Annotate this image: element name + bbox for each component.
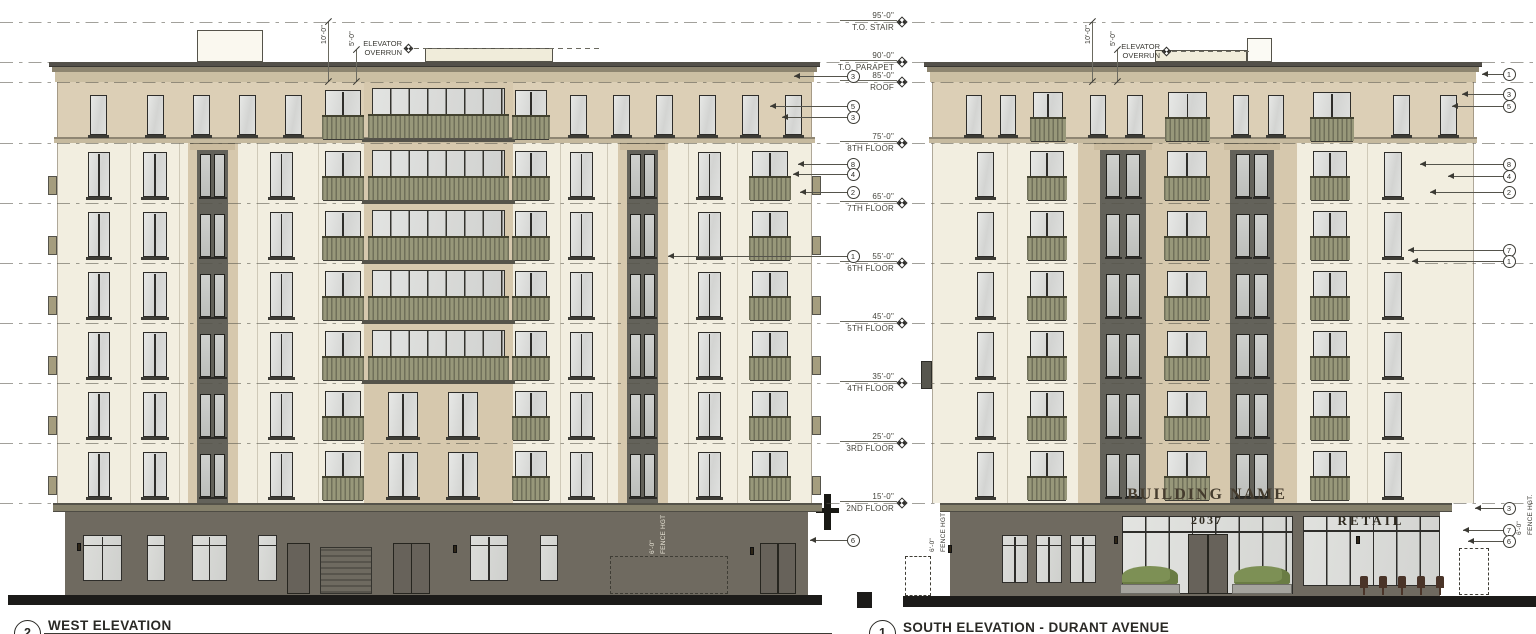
stool-leg [1420, 588, 1422, 595]
stack-window-sill [199, 317, 213, 319]
side-balcony-profile [812, 236, 821, 255]
callout-bubble: 1 [847, 250, 860, 263]
attic-window [742, 95, 759, 135]
stack-window-sill [643, 317, 657, 319]
storefront-mullion [102, 537, 104, 580]
side-balcony-profile [48, 176, 57, 195]
stack-window [1106, 274, 1120, 317]
juliet-railing [1027, 236, 1067, 260]
juliet-railing [322, 416, 364, 440]
juliet-railing [1027, 416, 1067, 440]
wall-corner [57, 82, 58, 503]
side-balcony-profile [48, 296, 57, 315]
callout-arrowhead [668, 253, 674, 259]
juliet-railing [512, 476, 550, 500]
storefront-window [258, 535, 277, 581]
stool-leg [1382, 588, 1384, 595]
callout-bubble: 1 [1503, 68, 1516, 81]
callout-arrowhead [1420, 161, 1426, 167]
level-target-marker [896, 76, 907, 87]
side-balcony-profile [48, 416, 57, 435]
fence-dashed-outline [905, 556, 931, 596]
window-sill [1438, 135, 1459, 138]
stack-window [1126, 334, 1140, 377]
stool [1360, 576, 1368, 588]
window-sill [740, 135, 761, 138]
stack-window-sill [213, 497, 227, 499]
window-sill [1382, 317, 1404, 320]
level-name-text: 5TH FLOOR [820, 324, 894, 333]
juliet-railing [512, 416, 550, 440]
fence-dim-text: 6'-0" [649, 540, 656, 554]
callout-bubble: 3 [1503, 502, 1516, 515]
callout-arrowhead [1448, 173, 1454, 179]
level-elevation-text: 65'-0" [828, 192, 894, 201]
stack-window [1254, 394, 1268, 437]
stack-window [200, 394, 211, 437]
callout-leader [798, 164, 847, 165]
attic-window [699, 95, 716, 135]
callout-arrowhead [798, 161, 804, 167]
level-line [0, 143, 1536, 144]
window-sill [611, 135, 632, 138]
window-sill [975, 197, 996, 200]
stair-penthouse [197, 30, 263, 62]
window-mullion [154, 334, 156, 376]
entry-transom-bar [1123, 531, 1292, 533]
attic-window [1090, 95, 1106, 135]
fence-label-text: FENCE HGT [940, 513, 947, 552]
stack-window [1106, 154, 1120, 197]
window-sill [964, 135, 984, 138]
level-name-text: 6TH FLOOR [820, 264, 894, 273]
stack-window [644, 334, 655, 377]
stack-window-sill [629, 317, 643, 319]
stack-window [630, 394, 641, 437]
stack-window [644, 394, 655, 437]
callout-leader [1462, 94, 1503, 95]
callout-arrowhead [800, 189, 806, 195]
callout-bubble: 8 [1503, 158, 1516, 171]
storefront-transom-bar [193, 545, 226, 546]
street-line [903, 596, 1536, 607]
stack-window [200, 454, 211, 497]
storefront-mullion [209, 537, 211, 580]
juliet-railing [512, 236, 550, 260]
attic-window [1127, 95, 1143, 135]
planter [1120, 584, 1180, 594]
level-rule [840, 141, 897, 142]
window-mullion [709, 394, 711, 436]
level-elevation-text: 45'-0" [828, 312, 894, 321]
level-rule [840, 441, 897, 442]
wall-light-fixture [77, 543, 81, 551]
callout-arrowhead [1463, 527, 1469, 533]
stack-window-sill [1105, 197, 1122, 199]
stack-window-sill [1105, 377, 1122, 379]
stack-window-sill [1253, 317, 1270, 319]
window-sill [446, 497, 480, 500]
juliet-railing [1310, 176, 1350, 200]
window-mullion [709, 214, 711, 256]
west-sheet-number: 2 [14, 620, 41, 634]
window-mullion [154, 454, 156, 496]
level-elevation-text: 25'-0" [828, 432, 894, 441]
window-sill [697, 135, 718, 138]
window-sill [568, 497, 595, 500]
callout-leader [1420, 164, 1503, 165]
stool [1417, 576, 1425, 588]
window [1384, 392, 1402, 437]
window-sill [568, 197, 595, 200]
juliet-railing [322, 236, 364, 260]
window-sill [141, 257, 169, 260]
window-mullion [581, 214, 583, 256]
stack-window [1106, 214, 1120, 257]
stack-window-sill [1253, 437, 1270, 439]
stack-window [644, 454, 655, 497]
stack-window-sill [1235, 257, 1252, 259]
stack-window [630, 214, 641, 257]
level-rule [840, 321, 897, 322]
juliet-railing [1027, 176, 1067, 200]
callout-arrowhead [1452, 103, 1458, 109]
window-mullion [281, 154, 283, 196]
attic-window [1000, 95, 1016, 135]
window-sill [1382, 197, 1404, 200]
stack-window-sill [1125, 257, 1142, 259]
elevator-marker [404, 44, 414, 54]
building-name-sign: BUILDING NAME [1107, 486, 1307, 504]
stack-window-sill [1125, 317, 1142, 319]
window-sill [696, 497, 723, 500]
window-sill [1391, 135, 1412, 138]
window [1384, 212, 1402, 257]
wall-light-fixture [1114, 536, 1118, 544]
window-mullion [154, 154, 156, 196]
callout-arrowhead [1468, 538, 1474, 544]
stack-window-sill [1105, 437, 1122, 439]
level-line [0, 22, 1536, 23]
window [977, 272, 994, 317]
callout-leader [793, 174, 847, 175]
callout-leader [782, 117, 847, 118]
wall-light-fixture [453, 545, 457, 553]
stack-window-sill [643, 377, 657, 379]
wall-light-fixture [750, 547, 754, 555]
stack-window-sill [629, 437, 643, 439]
attic-window [239, 95, 256, 135]
side-balcony-profile [812, 476, 821, 495]
stack-window [1236, 214, 1250, 257]
wall-light-fixture [948, 545, 952, 553]
stack-window-sill [199, 197, 213, 199]
callout-arrowhead [794, 73, 800, 79]
callout-arrowhead [770, 103, 776, 109]
storefront-transom-bar [541, 545, 557, 546]
juliet-railing [749, 356, 791, 380]
shrub [1234, 566, 1290, 586]
juliet-railing [1165, 117, 1210, 141]
window-sill [1088, 135, 1108, 138]
window-sill [975, 377, 996, 380]
stool [1436, 576, 1444, 588]
juliet-railing [1310, 117, 1354, 141]
side-balcony-profile [48, 236, 57, 255]
callout-bubble: 6 [1503, 535, 1516, 548]
level-target-marker [896, 137, 907, 148]
stack-window-sill [213, 317, 227, 319]
callout-leader [770, 106, 847, 107]
level-target-marker [896, 56, 907, 67]
window-sill [783, 135, 804, 138]
window-sill [268, 377, 295, 380]
street-line [8, 595, 822, 605]
window [977, 332, 994, 377]
side-balcony-profile [48, 356, 57, 375]
level-name-text: 8TH FLOOR [820, 144, 894, 153]
window-mullion [98, 394, 100, 436]
stack-window-sill [1125, 377, 1142, 379]
level-line [0, 82, 1536, 83]
callout-bubble: 1 [1503, 255, 1516, 268]
stack-window [214, 454, 225, 497]
juliet-railing [749, 476, 791, 500]
elevator-overrun-box [425, 48, 553, 62]
stack-window [200, 154, 211, 197]
cornice-fascia [55, 72, 814, 82]
stack-window-sill [629, 377, 643, 379]
window-mullion [281, 214, 283, 256]
juliet-railing [1310, 356, 1350, 380]
window-sill [975, 257, 996, 260]
stack-window-sill [643, 497, 657, 499]
stack-window-sill [213, 257, 227, 259]
storefront-window [147, 535, 165, 581]
dim-line [328, 22, 329, 82]
window-sill [86, 497, 112, 500]
juliet-railing [1027, 296, 1067, 320]
stack-window-sill [199, 257, 213, 259]
level-rule [840, 501, 897, 502]
level-elevation-text: 55'-0" [828, 252, 894, 261]
callout-arrowhead [1475, 505, 1481, 511]
balcony-slab [362, 138, 515, 142]
wall-corner [1473, 82, 1474, 503]
stack-window-sill [1105, 257, 1122, 259]
callout-leader [794, 76, 847, 77]
stack-window [630, 454, 641, 497]
storefront-transom-bar [148, 545, 164, 546]
stack-window [200, 334, 211, 377]
door [287, 543, 310, 594]
juliet-railing [1164, 176, 1210, 200]
fence-dim-text: 6'-0" [929, 538, 936, 552]
stack-window [644, 214, 655, 257]
cornice-fascia [930, 72, 1476, 82]
storefront-window [540, 535, 558, 581]
stack-capital [1094, 143, 1152, 150]
window [1384, 452, 1402, 497]
window-mullion [98, 274, 100, 316]
level-rule [840, 201, 897, 202]
elevator-leader [414, 48, 600, 49]
fence-label-text: FENCE HGT. [1527, 494, 1534, 535]
stack-window [200, 214, 211, 257]
stack-window [214, 214, 225, 257]
window-sill [268, 437, 295, 440]
window-sill [696, 317, 723, 320]
window-sill [141, 197, 169, 200]
dim-text: 10'-0" [321, 25, 328, 44]
callout-bubble: 6 [847, 534, 860, 547]
storefront-transom-bar [259, 545, 276, 546]
stack-window [1126, 214, 1140, 257]
side-balcony-profile-dark [921, 361, 932, 389]
callout-bubble: 2 [847, 186, 860, 199]
window-sill [283, 135, 304, 138]
juliet-railing [1310, 476, 1350, 500]
side-balcony-profile [812, 416, 821, 435]
stack-window [1254, 154, 1268, 197]
stack-window [630, 334, 641, 377]
address-sign: 2037 [1167, 513, 1247, 528]
door-mullion [411, 544, 412, 593]
stool-leg [1439, 588, 1441, 595]
window-mullion [98, 454, 100, 496]
callout-bubble: 4 [847, 168, 860, 181]
attic-window [613, 95, 630, 135]
level-line [0, 443, 1536, 444]
stack-window [1126, 154, 1140, 197]
level-rule [840, 381, 897, 382]
level-rule [840, 20, 897, 21]
stack-window-sill [1253, 197, 1270, 199]
juliet-railing [368, 356, 509, 382]
window-mullion [581, 154, 583, 196]
juliet-railing [749, 416, 791, 440]
window-mullion [281, 454, 283, 496]
window [977, 152, 994, 197]
juliet-railing [322, 176, 364, 200]
juliet-railing [1164, 296, 1210, 320]
window-sill [386, 497, 420, 500]
juliet-railing [322, 115, 364, 139]
elevator-overrun-label: OVERRUN [332, 49, 402, 58]
window [1384, 152, 1402, 197]
window-sill [696, 197, 723, 200]
stack-window [200, 274, 211, 317]
storefront-mullion [1014, 537, 1016, 582]
stack-window-sill [213, 437, 227, 439]
storefront-cornice [940, 505, 1452, 512]
storefront-mullion [1082, 537, 1084, 582]
level-target-marker [896, 497, 907, 508]
window-sill [86, 197, 112, 200]
garage-door [320, 547, 372, 594]
callout-leader [1430, 192, 1503, 193]
stack-window-sill [629, 197, 643, 199]
callout-arrowhead [1482, 71, 1488, 77]
level-target-marker [896, 257, 907, 268]
storefront-mullion [488, 537, 490, 580]
stack-window-sill [213, 377, 227, 379]
window-mullion [581, 274, 583, 316]
window-sill [568, 257, 595, 260]
window-sill [975, 437, 996, 440]
window-sill [145, 135, 166, 138]
juliet-railing [512, 356, 550, 380]
elevator-overrun-label: OVERRUN [1090, 52, 1160, 61]
retail-transom-bar [1304, 530, 1439, 532]
dim-text: 10'-0" [1085, 25, 1092, 44]
window-sill [1231, 135, 1251, 138]
stack-capital [620, 143, 665, 150]
juliet-railing [1310, 416, 1350, 440]
juliet-railing [322, 356, 364, 380]
window [1384, 272, 1402, 317]
window-sill [88, 135, 109, 138]
window-mullion [98, 214, 100, 256]
stack-window-sill [629, 257, 643, 259]
window-mullion [709, 454, 711, 496]
storefront-cornice [53, 505, 822, 512]
window-mullion [98, 334, 100, 376]
window-sill [191, 135, 212, 138]
juliet-railing [749, 236, 791, 260]
side-balcony-profile [48, 476, 57, 495]
callout-arrowhead [1462, 91, 1468, 97]
window-sill [86, 317, 112, 320]
callout-leader [800, 192, 847, 193]
window-mullion [154, 274, 156, 316]
level-target-marker [896, 197, 907, 208]
stack-window-sill [643, 257, 657, 259]
callout-leader [1412, 261, 1503, 262]
window-sill [568, 135, 589, 138]
south-title: SOUTH ELEVATION - DURANT AVENUE [903, 620, 1169, 634]
window-mullion [581, 454, 583, 496]
level-target-marker [896, 16, 907, 27]
window-sill [568, 317, 595, 320]
stool [1398, 576, 1406, 588]
stack-window [1236, 334, 1250, 377]
retail-sign: RETAIL [1311, 513, 1431, 529]
callout-arrowhead [1430, 189, 1436, 195]
stack-window-sill [643, 437, 657, 439]
stack-window [214, 394, 225, 437]
window-sill [975, 317, 996, 320]
callout-bubble: 3 [1503, 88, 1516, 101]
callout-arrowhead [793, 171, 799, 177]
stack-window [214, 334, 225, 377]
juliet-railing [749, 176, 791, 200]
stack-window-sill [1235, 197, 1252, 199]
side-balcony-profile [812, 296, 821, 315]
window-sill [696, 437, 723, 440]
wall-corner [811, 82, 812, 503]
window-sill [998, 135, 1018, 138]
window-sill [86, 437, 112, 440]
window-sill [446, 437, 480, 440]
window-sill [237, 135, 258, 138]
level-elevation-text: 35'-0" [828, 372, 894, 381]
juliet-railing [1310, 296, 1350, 320]
wall-light-fixture [1356, 536, 1360, 544]
stack-window-sill [1235, 437, 1252, 439]
window-sill [268, 257, 295, 260]
window-sill [1382, 257, 1404, 260]
